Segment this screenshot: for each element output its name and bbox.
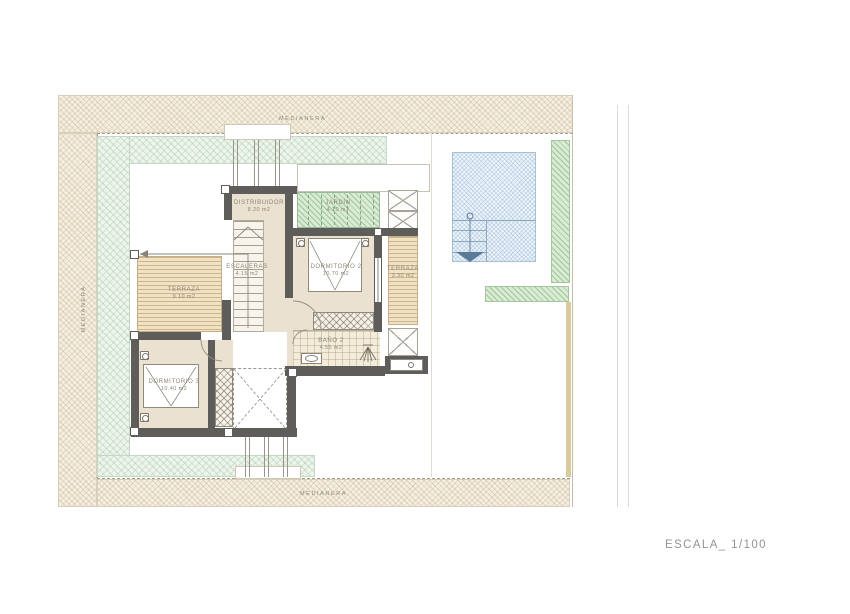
pillar xyxy=(130,250,139,259)
wall xyxy=(131,332,201,340)
window-dormitorio2 xyxy=(374,258,382,302)
wall xyxy=(131,428,230,437)
property-line-top xyxy=(97,133,573,134)
garden-strip-top xyxy=(97,136,387,164)
floor-plan-canvas: MEDIANERA MEDIANERA MEDIANERA DISTRIBUID… xyxy=(0,0,850,614)
post-bottom-2 xyxy=(264,437,269,477)
room-label-bano2: BAÑO 2 4.55 m2 xyxy=(318,338,344,351)
wall xyxy=(374,236,382,258)
jardin-plant-line xyxy=(373,195,374,225)
side-wall-right xyxy=(566,302,571,477)
room-label-jardin: JARDÍN 4.10 m2 xyxy=(325,200,350,213)
medianera-label-left: MEDIANERA xyxy=(81,285,87,332)
wall xyxy=(222,300,231,332)
room-area: 3.30 m2 xyxy=(392,273,415,279)
wall xyxy=(285,194,293,298)
wall xyxy=(224,186,297,194)
room-name: DISTRIBUIDOR xyxy=(234,200,284,206)
margin-divider-line-2 xyxy=(628,105,629,507)
pillar xyxy=(221,185,230,194)
closet-dormitorio3 xyxy=(215,368,233,427)
wall xyxy=(382,228,418,236)
room-area: 4.55 m2 xyxy=(320,345,343,351)
pillar xyxy=(130,331,139,340)
room-name: JARDÍN xyxy=(325,200,350,206)
jardin-plant-line xyxy=(360,195,361,225)
room-label-dormitorio2: DORMITORIO 2 10.70 m2 xyxy=(310,264,361,277)
room-name: ESCALERAS xyxy=(226,264,267,270)
jardin-plant-line xyxy=(321,195,322,225)
sink-basin-icon xyxy=(305,355,318,362)
room-label-distribuidor: DISTRIBUIDOR 8.20 m2 xyxy=(234,200,284,213)
pergola-xbox-1 xyxy=(388,190,418,211)
boundary-band-top xyxy=(58,95,573,133)
room-label-dormitorio3: DORMITORIO 3 10.40 m2 xyxy=(148,379,199,392)
medianera-label-top: MEDIANERA xyxy=(279,116,326,122)
garden-bed-right-horizontal xyxy=(485,286,569,302)
floor-vestibule xyxy=(215,340,233,368)
pergola-outline xyxy=(297,164,430,192)
room-label-terraza-east: TERRAZA 3.30 m2 xyxy=(387,266,419,279)
wall xyxy=(374,302,382,332)
wall xyxy=(287,376,296,432)
pillar xyxy=(288,368,297,377)
wall xyxy=(222,332,231,340)
room-name: TERRAZA xyxy=(168,287,200,293)
garden-bed-right-vertical xyxy=(551,140,570,283)
planter-drain-icon xyxy=(408,362,414,368)
scale-label: ESCALA_ 1/100 xyxy=(665,539,767,551)
wall-sconce-icon xyxy=(140,413,149,422)
room-area: 10.70 m2 xyxy=(323,271,349,277)
post-top-2 xyxy=(254,140,259,186)
room-label-escaleras: ESCALERAS 4.15 m2 xyxy=(226,264,267,277)
room-name: DORMITORIO 2 xyxy=(310,264,361,270)
room-area: 8.20 m2 xyxy=(248,207,271,213)
pillar xyxy=(224,428,233,437)
pillar xyxy=(130,427,139,436)
room-label-terraza-west: TERRAZA 9.10 m2 xyxy=(168,287,200,300)
jardin-plant-line xyxy=(308,195,309,225)
floor-dormitorio2-south xyxy=(293,312,313,330)
pillar xyxy=(374,228,382,236)
closet-dormitorio2 xyxy=(313,312,374,330)
room-area: 4.10 m2 xyxy=(327,207,350,213)
double-height-void xyxy=(233,368,287,430)
boundary-band-left xyxy=(58,133,97,507)
pergola-xbox-3 xyxy=(388,328,418,356)
post-bottom-1 xyxy=(245,437,250,477)
wall xyxy=(131,340,139,436)
entry-notch-top xyxy=(224,124,291,140)
wall xyxy=(285,366,385,376)
deck-terraza-east xyxy=(388,236,418,325)
planter-inner xyxy=(390,359,423,371)
post-bottom-3 xyxy=(283,437,288,477)
post-top-3 xyxy=(275,140,280,186)
post-top-1 xyxy=(233,140,238,186)
pool-steps xyxy=(452,220,487,262)
room-name: TERRAZA xyxy=(387,266,419,272)
wall xyxy=(208,340,215,428)
wall xyxy=(233,428,297,437)
patio-edge-line xyxy=(431,133,432,477)
room-area: 10.40 m2 xyxy=(161,386,187,392)
medianera-label-bottom: MEDIANERA xyxy=(300,491,347,497)
garden-strip-left xyxy=(97,136,130,477)
property-line-right xyxy=(572,95,573,507)
room-area: 9.10 m2 xyxy=(173,294,196,300)
wall-sconce-icon xyxy=(296,238,305,247)
room-name: DORMITORIO 3 xyxy=(148,379,199,385)
margin-divider-line-1 xyxy=(617,105,618,507)
room-name: BAÑO 2 xyxy=(318,338,344,344)
property-line-bottom xyxy=(97,478,570,479)
wall-sconce-icon xyxy=(140,351,149,360)
wall xyxy=(285,228,382,236)
room-area: 4.15 m2 xyxy=(236,271,259,277)
